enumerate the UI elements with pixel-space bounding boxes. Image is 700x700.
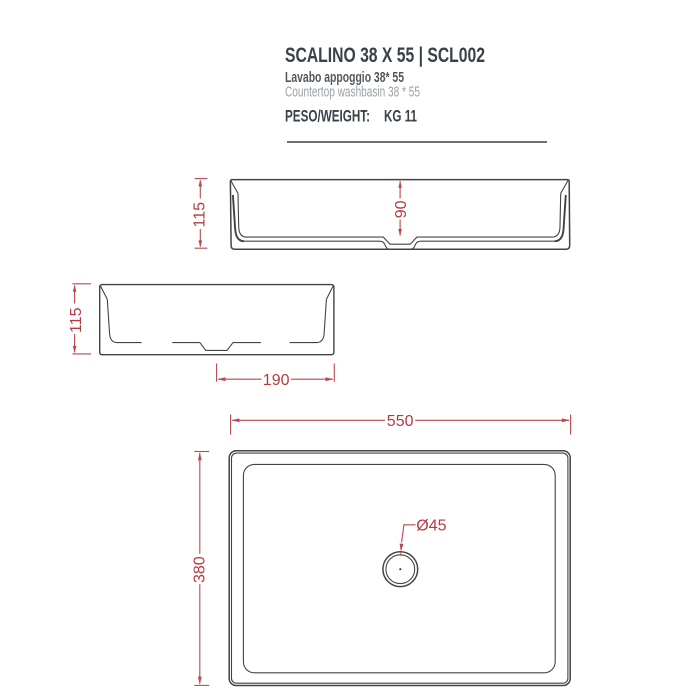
svg-text:115: 115 — [68, 307, 85, 333]
svg-text:PESO/WEIGHT:: PESO/WEIGHT: — [285, 107, 370, 126]
svg-text:90: 90 — [393, 200, 410, 218]
svg-text:KG 11: KG 11 — [384, 107, 417, 126]
svg-text:190: 190 — [263, 372, 290, 389]
svg-text:Ø45: Ø45 — [416, 518, 446, 535]
svg-text:SCALINO 38 X 55 | SCL002: SCALINO 38 X 55 | SCL002 — [285, 44, 485, 67]
svg-text:Countertop washbasin 38 * 55: Countertop washbasin 38 * 55 — [285, 84, 420, 101]
svg-text:550: 550 — [387, 413, 414, 430]
svg-text:380: 380 — [191, 556, 208, 583]
svg-text:115: 115 — [192, 202, 209, 228]
